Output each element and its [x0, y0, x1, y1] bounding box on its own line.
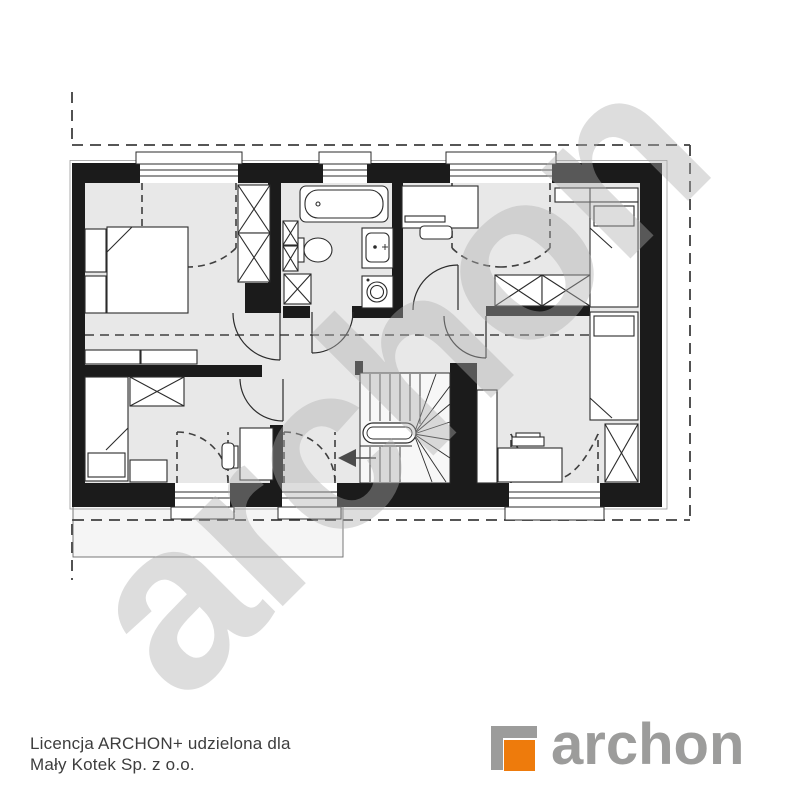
license-line-2: Mały Kotek Sp. z o.o.	[30, 754, 291, 775]
page: { "watermark": { "text": "archon" }, "li…	[0, 0, 800, 800]
wardrobe-crossed	[130, 377, 184, 406]
logo-corner-bar-left	[491, 726, 503, 770]
toilet	[295, 238, 332, 262]
double-bed	[85, 227, 188, 313]
wardrobe-crossed	[605, 424, 638, 482]
floor-plan-drawing: archon	[0, 0, 800, 800]
archon-logo-icon	[491, 726, 538, 773]
wardrobe-crossed	[238, 185, 270, 282]
dresser	[85, 350, 197, 364]
license-line-1: Licencja ARCHON+ udzielona dla	[30, 733, 291, 754]
logo-orange-square	[504, 740, 535, 771]
archon-logo-text: archon	[551, 714, 744, 776]
license-text: Licencja ARCHON+ udzielona dla Mały Kote…	[30, 733, 291, 775]
archon-logo: archon	[491, 714, 744, 776]
window-bathroom	[319, 152, 371, 183]
